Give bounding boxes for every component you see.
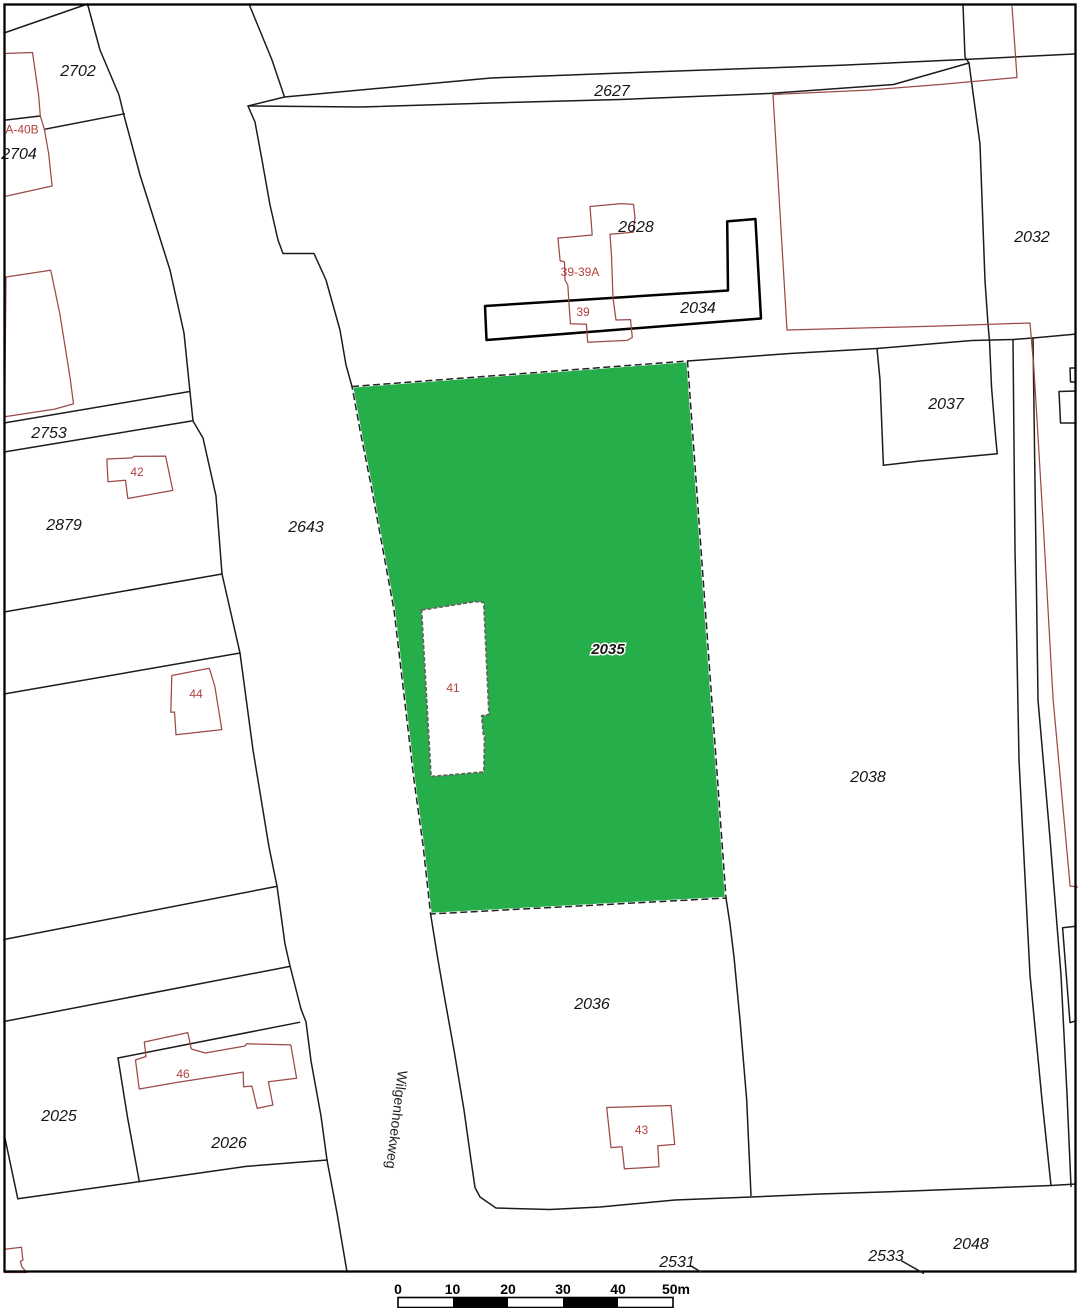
svg-text:10: 10 (445, 1281, 461, 1297)
svg-text:2038: 2038 (849, 769, 886, 786)
svg-text:2627: 2627 (593, 83, 631, 100)
svg-text:41: 41 (446, 681, 460, 695)
svg-text:46: 46 (176, 1067, 190, 1081)
svg-text:2533: 2533 (867, 1248, 904, 1265)
svg-text:2037: 2037 (927, 396, 965, 413)
svg-text:2531: 2531 (658, 1254, 695, 1271)
svg-text:2048: 2048 (952, 1236, 989, 1253)
svg-text:2879: 2879 (45, 517, 82, 534)
svg-text:2035: 2035 (590, 641, 625, 658)
svg-text:0: 0 (394, 1281, 402, 1297)
svg-text:2026: 2026 (210, 1135, 247, 1152)
svg-text:2753: 2753 (30, 425, 67, 442)
svg-text:2036: 2036 (573, 996, 610, 1013)
svg-text:39-39A: 39-39A (561, 265, 600, 279)
svg-text:2628: 2628 (617, 219, 654, 236)
svg-text:43: 43 (635, 1123, 649, 1137)
svg-text:50m: 50m (662, 1281, 690, 1297)
svg-text:30: 30 (555, 1281, 571, 1297)
svg-text:2034: 2034 (679, 300, 716, 317)
svg-text:39: 39 (576, 305, 590, 319)
svg-text:A-40B: A-40B (5, 123, 38, 137)
svg-text:20: 20 (500, 1281, 516, 1297)
svg-text:2704: 2704 (0, 146, 37, 163)
svg-text:2643: 2643 (287, 519, 324, 536)
svg-text:2702: 2702 (59, 63, 96, 80)
svg-text:2032: 2032 (1013, 229, 1050, 246)
svg-text:44: 44 (189, 687, 203, 701)
svg-text:2025: 2025 (40, 1108, 77, 1125)
svg-text:42: 42 (130, 465, 144, 479)
svg-text:40: 40 (610, 1281, 626, 1297)
